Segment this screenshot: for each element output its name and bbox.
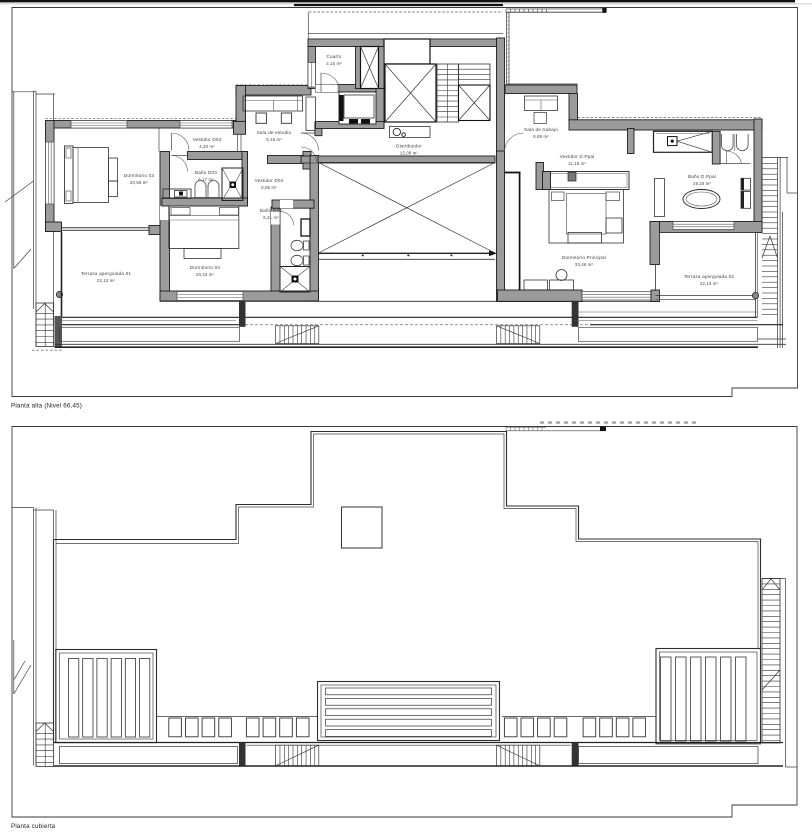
svg-text:6,17 m²: 6,17 m² — [198, 177, 214, 182]
svg-text:Sala de estudio: Sala de estudio — [257, 130, 292, 135]
svg-text:6,31 m²: 6,31 m² — [263, 215, 279, 220]
svg-text:22,13 m²: 22,13 m² — [97, 278, 116, 283]
svg-text:22,13 m²: 22,13 m² — [700, 281, 719, 286]
svg-text:Vestidor D03: Vestidor D03 — [193, 137, 222, 142]
svg-text:5,85 m²: 5,85 m² — [261, 185, 277, 190]
svg-text:33,46 m²: 33,46 m² — [575, 262, 594, 267]
svg-text:8,89 m²: 8,89 m² — [533, 134, 549, 139]
svg-text:Dormitorio 04: Dormitorio 04 — [190, 265, 220, 270]
svg-text:Sala de trabajo: Sala de trabajo — [524, 127, 558, 132]
svg-text:Terraza apergolada 02: Terraza apergolada 02 — [684, 274, 734, 279]
svg-text:Cuarto: Cuarto — [327, 54, 342, 59]
svg-text:Dormitorio 03: Dormitorio 03 — [124, 173, 154, 178]
svg-text:20,59 m²: 20,59 m² — [130, 180, 149, 185]
svg-text:Terraza apergolada 01: Terraza apergolada 01 — [81, 271, 131, 276]
svg-text:4,20 m²: 4,20 m² — [199, 144, 215, 149]
svg-text:3,15 m²: 3,15 m² — [326, 61, 342, 66]
svg-text:Baño D03: Baño D03 — [195, 170, 217, 175]
svg-text:Baño D04: Baño D04 — [260, 208, 282, 213]
svg-text:Distribuidor: Distribuidor — [396, 144, 422, 149]
svg-text:15,09 m²: 15,09 m² — [400, 151, 419, 156]
svg-text:Dormitorio Principal: Dormitorio Principal — [562, 255, 606, 260]
svg-text:Vestidor D.Ppal: Vestidor D.Ppal — [560, 154, 595, 159]
svg-text:19,20 m²: 19,20 m² — [693, 181, 712, 186]
svg-text:Vestidor D04: Vestidor D04 — [255, 178, 284, 183]
svg-text:11,18 m²: 11,18 m² — [568, 161, 586, 166]
svg-text:20,23 m²: 20,23 m² — [196, 272, 215, 277]
svg-text:8,18 m²: 8,18 m² — [266, 137, 282, 142]
svg-text:Planta cubierta: Planta cubierta — [11, 823, 56, 830]
svg-text:Baño D.Ppal: Baño D.Ppal — [688, 174, 716, 179]
svg-text:Planta alta (Nivel 66,45): Planta alta (Nivel 66,45) — [11, 403, 82, 410]
